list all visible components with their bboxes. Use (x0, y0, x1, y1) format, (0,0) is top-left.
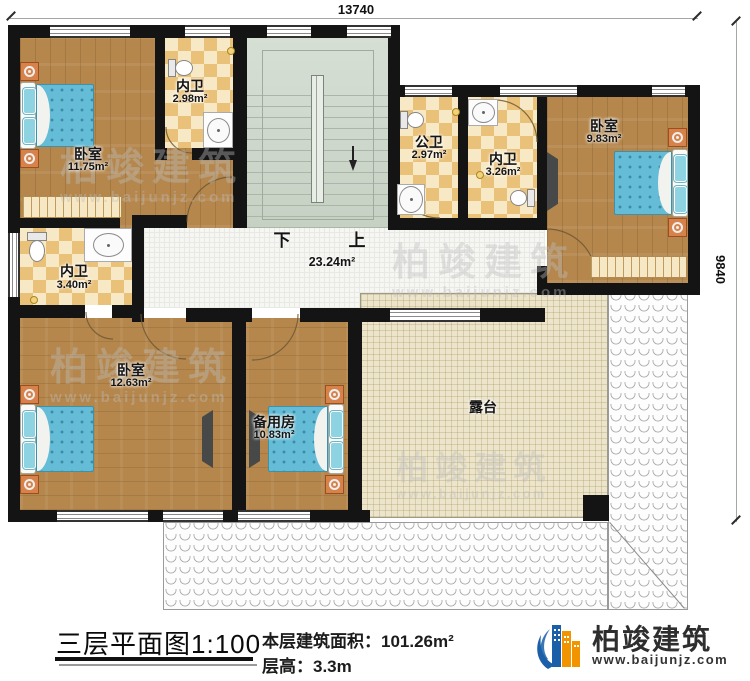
nightstand (325, 475, 344, 494)
pillow (23, 88, 36, 114)
wall-segment (232, 315, 246, 510)
nightstand (325, 385, 344, 404)
pillow (23, 411, 36, 438)
dimension-tick (6, 11, 16, 21)
plan-scale: 1:100 (191, 629, 261, 659)
wall-segment (688, 85, 700, 295)
room-area: 2.98m² (173, 94, 208, 105)
door-knob (476, 171, 484, 179)
floor-height-line: 层高：3.3m (262, 652, 352, 677)
toilet (27, 232, 47, 263)
floor-area-label: 本层建筑面积： (262, 632, 381, 651)
wall-segment (132, 215, 187, 228)
nightstand (668, 128, 687, 147)
wall-segment (537, 266, 547, 295)
wardrobe (22, 196, 122, 218)
wall-segment (8, 218, 120, 228)
dimension-right-value: 9840 (713, 249, 728, 290)
floor-height-value: 3.3m (313, 657, 352, 676)
pillow (23, 118, 36, 144)
wall-segment (390, 218, 547, 230)
room-area: 3.26m² (486, 167, 521, 178)
toilet (510, 188, 536, 208)
floor-plan: 柏竣建筑 www.baijunjz.com 柏竣建筑 www.baijunjz.… (0, 0, 750, 681)
sink-basin (93, 233, 124, 257)
wall-segment (458, 97, 468, 230)
nightstand (668, 218, 687, 237)
room-label: 露台 (469, 400, 497, 414)
wall-segment (300, 308, 390, 322)
dimension-line-right (736, 22, 737, 522)
window (405, 85, 452, 97)
wall-segment (112, 305, 132, 318)
room-area: 11.75m² (68, 162, 108, 173)
roof-bottom (163, 522, 608, 610)
wall-segment (192, 148, 233, 160)
pillow (674, 155, 687, 182)
window (50, 25, 130, 38)
toilet (400, 110, 425, 130)
brand-logo: 柏竣建筑 www.baijunjz.com (534, 616, 744, 674)
stairs-up-label: 上 (349, 232, 366, 249)
door-knob (227, 47, 235, 55)
stair-handrail (311, 75, 324, 203)
nightstand (20, 149, 39, 168)
wall-segment (132, 228, 144, 322)
sink-basin (472, 102, 495, 123)
room-label: 内卫 (60, 264, 88, 278)
window (500, 85, 577, 97)
title-rule-thin (59, 664, 257, 666)
wall-segment (545, 283, 700, 295)
stairs-down-label: 下 (274, 232, 291, 249)
window (163, 510, 223, 522)
wall-segment (480, 308, 545, 322)
window (238, 510, 310, 522)
room-area: 9.83m² (587, 134, 622, 145)
sink-basin (207, 118, 230, 143)
window (8, 233, 20, 297)
wall-segment (8, 305, 85, 318)
pillow (330, 442, 343, 469)
room-label: 卧室 (117, 363, 145, 377)
hall-area: 23.24m² (309, 256, 356, 269)
nightstand (20, 385, 39, 404)
tv-unit (547, 152, 558, 211)
room-label: 公卫 (415, 135, 443, 149)
terrace-column (583, 495, 609, 521)
pillow (674, 186, 687, 213)
room-area: 3.40m² (57, 280, 92, 291)
pillow (330, 411, 343, 438)
window (57, 510, 148, 522)
toilet (168, 58, 194, 78)
dimension-top-value: 13740 (332, 2, 380, 17)
room-label: 内卫 (176, 79, 204, 93)
room-label: 备用房 (253, 415, 295, 429)
window (267, 25, 311, 38)
room-area: 10.83m² (254, 430, 295, 441)
wall-segment (155, 148, 167, 160)
tv-unit (202, 410, 213, 468)
floor-area-line: 本层建筑面积：101.26m² (262, 627, 454, 652)
plan-title: 三层平面图1:100 (56, 624, 261, 661)
window (390, 308, 480, 322)
dimension-line-top (10, 18, 698, 19)
plan-title-text: 三层平面图 (56, 629, 191, 659)
bed (20, 404, 96, 474)
room-area: 2.97m² (412, 150, 447, 161)
room-label: 卧室 (590, 119, 618, 133)
bed (20, 82, 96, 149)
nightstand (20, 475, 39, 494)
pillow (23, 442, 36, 469)
floor-height-label: 层高： (262, 657, 313, 676)
brand-logo-icon (534, 617, 586, 673)
room-area: 12.63m² (111, 378, 152, 389)
wall-segment (537, 97, 547, 230)
brand-logo-site: www.baijunjz.com (592, 652, 728, 667)
nightstand (20, 62, 39, 81)
dimension-tick (692, 11, 702, 21)
title-rule-thick (55, 657, 253, 661)
floor-area-value: 101.26m² (381, 632, 454, 651)
wardrobe (590, 256, 687, 278)
window (347, 25, 391, 38)
room-label: 卧室 (74, 147, 102, 161)
bed (612, 149, 688, 217)
wall-segment (233, 38, 247, 228)
sink-basin (399, 186, 423, 213)
window (652, 85, 685, 97)
door-knob (30, 296, 38, 304)
wall-segment (348, 315, 362, 510)
window (185, 25, 230, 38)
roof-right (608, 293, 688, 610)
door-knob (452, 108, 460, 116)
room-label: 内卫 (489, 152, 517, 166)
stair-arrow-head (349, 160, 357, 171)
wall-segment (155, 38, 165, 148)
